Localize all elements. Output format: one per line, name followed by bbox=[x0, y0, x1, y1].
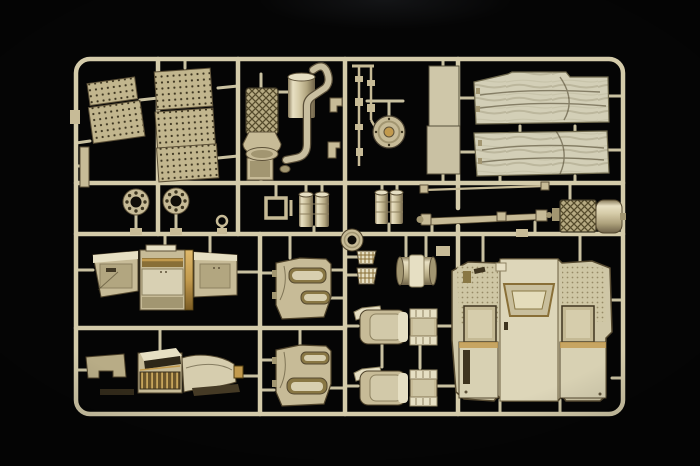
part-drive-shaft bbox=[417, 210, 553, 225]
part-left-edge-strip bbox=[80, 147, 89, 187]
console-grille bbox=[140, 372, 180, 389]
part-dashboard-assembly bbox=[93, 245, 237, 310]
gate-foot bbox=[130, 228, 142, 235]
gate-foot bbox=[170, 228, 182, 235]
part-canvas-cover-bottom bbox=[474, 131, 609, 176]
center-tunnel bbox=[500, 259, 558, 401]
instrument-panel bbox=[142, 269, 183, 295]
part-mirror-arms bbox=[352, 66, 382, 166]
part-seat-1 bbox=[354, 306, 408, 344]
part-grille-panel-small bbox=[85, 77, 145, 144]
part-roller-drum bbox=[397, 255, 437, 287]
dashboard-gold-stripe bbox=[185, 250, 193, 310]
part-door-panel-1 bbox=[272, 258, 331, 319]
part-ring-flange-1 bbox=[123, 189, 149, 215]
part-round-hub bbox=[341, 229, 363, 251]
part-door-panel-2 bbox=[272, 345, 331, 406]
part-tall-flat-panel bbox=[427, 66, 460, 174]
part-canvas-cover-top bbox=[474, 72, 609, 124]
part-open-frame-bracket bbox=[266, 198, 291, 218]
part-fuel-drums-b bbox=[375, 190, 403, 224]
part-pedal-2 bbox=[357, 268, 377, 284]
part-console-assembly bbox=[86, 348, 243, 396]
part-seat-2 bbox=[354, 367, 408, 405]
part-clamp-ring bbox=[217, 216, 227, 226]
part-grille-panel-large bbox=[151, 68, 219, 182]
sprue-illustration: Photograph of a desert-tan injection-mol… bbox=[0, 0, 700, 466]
console-left-bracket bbox=[86, 354, 126, 378]
gate-tab bbox=[516, 229, 528, 237]
part-air-cleaner bbox=[243, 88, 281, 161]
part-small-plate bbox=[247, 158, 273, 180]
part-backrest-1 bbox=[410, 309, 437, 345]
part-spare-hub-disc bbox=[373, 116, 405, 148]
part-muffler-pipe bbox=[280, 66, 329, 172]
part-fuel-drums-a bbox=[299, 192, 329, 227]
part-bracket-a bbox=[330, 98, 342, 112]
part-pedal-1 bbox=[357, 251, 376, 264]
part-bracket-b bbox=[328, 142, 340, 158]
gate-foot bbox=[217, 228, 227, 234]
gate-tab bbox=[436, 246, 450, 256]
sprue-photo: Photograph of a desert-tan injection-mol… bbox=[0, 0, 700, 466]
part-exhaust-heat-shield bbox=[552, 200, 626, 233]
part-cab-floor-panel bbox=[452, 259, 612, 401]
right-lower-panel bbox=[560, 342, 606, 398]
part-ring-flange-2 bbox=[163, 188, 189, 214]
gate-tab bbox=[70, 110, 80, 124]
part-backrest-2 bbox=[410, 370, 437, 406]
